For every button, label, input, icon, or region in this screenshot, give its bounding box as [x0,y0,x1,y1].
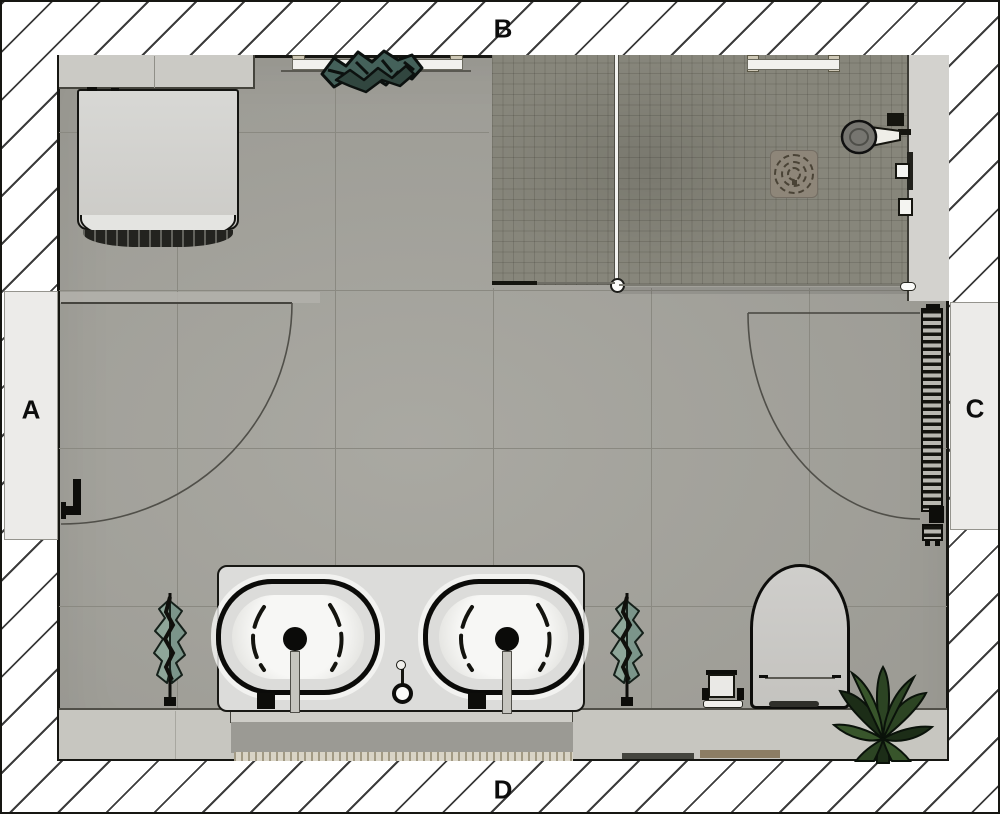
radiator-valve-box [922,524,943,541]
shower-screen-line [537,282,615,284]
storage-shelf [59,55,255,89]
shower-screen-edge [492,281,537,285]
brush-dish [703,700,743,708]
door-handle [61,502,66,519]
shower-door-handle [900,282,916,291]
shower-control-icon [898,198,913,216]
tub-mark [87,87,97,91]
label-a: A [22,395,41,426]
ledge-seam [175,711,176,759]
bathtub [77,89,239,252]
shower-screen-line [619,284,907,286]
sill-plant-icon [316,46,428,96]
brush-tab [737,688,744,700]
label-b: B [494,14,513,45]
bath-mat [231,722,573,753]
brush-canister [708,674,735,698]
floor-plant-right-icon [606,587,648,712]
floor-plant-left-icon [149,587,191,712]
label-d: D [494,775,513,806]
counter-fixture-ring [392,683,413,704]
tub-mark [111,88,119,91]
shower-glass-partition [614,55,619,285]
radiator-foot [935,541,940,546]
corner-plant-icon [826,647,940,765]
shower-edge-shadow [619,287,907,294]
faucet-riser [290,651,300,713]
floor-seam [59,448,947,449]
faucet-icon [495,627,519,651]
walk-in-shower-floor [492,55,907,285]
bathtub-body [77,89,239,230]
faucet-riser [502,651,512,714]
ledge-item-dark [622,753,694,759]
door-threshold [60,292,320,303]
toilet-base [769,701,819,707]
toilet-brush-set [702,668,744,709]
counter-fixture-tip [396,660,406,670]
brush-tab [702,688,709,700]
shower-niche [747,59,840,70]
label-c: C [966,394,985,425]
toilet-seat-line [765,677,835,679]
bath-mat-fringe [234,752,573,761]
bathroom-floor-plan: A B C D [0,0,1000,814]
drain-dot [792,180,797,185]
towel-radiator [921,308,943,512]
radiator-valve [929,506,944,523]
radiator-cap [926,304,940,310]
radiator-foot [925,541,930,546]
drain-ring-inner [787,167,801,181]
shower-control-icon [895,163,910,179]
drain-control [257,693,275,709]
bath-towel [83,230,233,247]
faucet-icon [283,627,307,651]
shower-back-wall [907,55,949,301]
drain-control [468,693,486,709]
floor-seam [651,288,652,708]
shelf-seam [154,56,155,88]
shower-drain-icon [770,150,818,198]
toilet-hinge [759,675,768,678]
ledge-item-wood [700,750,780,758]
